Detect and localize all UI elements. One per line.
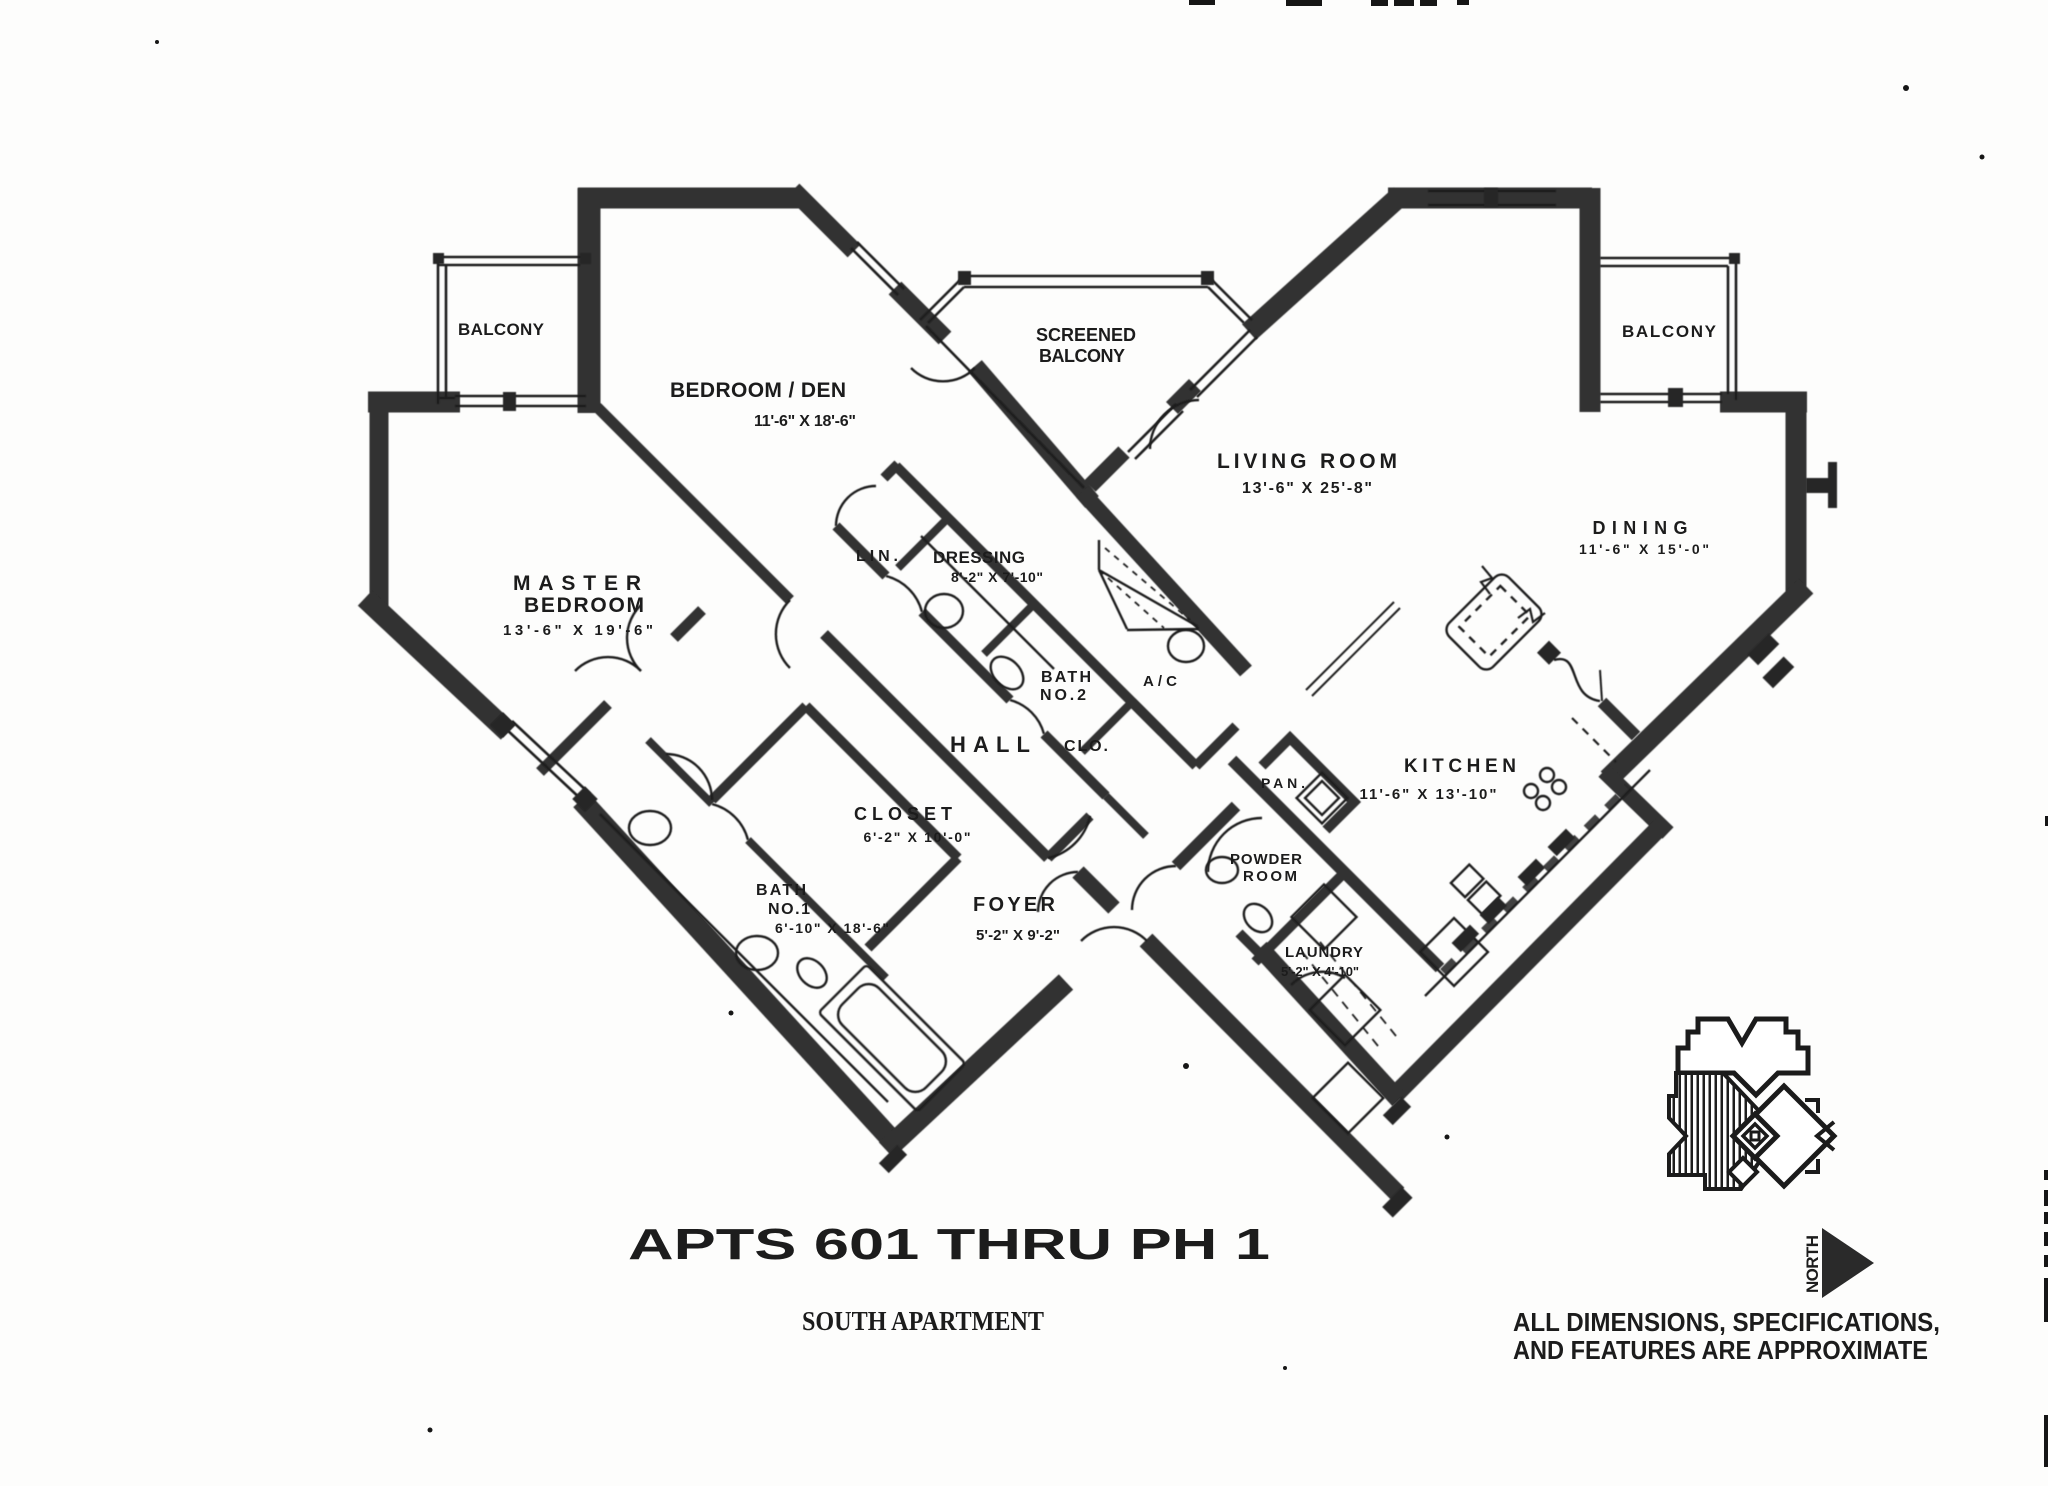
svg-text:5'-2" X 4'-10": 5'-2" X 4'-10" bbox=[1281, 964, 1359, 979]
svg-text:APTS 601 THRU PH 1: APTS 601 THRU PH 1 bbox=[628, 1220, 1270, 1269]
svg-text:LAUNDRY: LAUNDRY bbox=[1285, 944, 1363, 961]
svg-text:NO.1: NO.1 bbox=[768, 901, 810, 918]
svg-text:ROOM: ROOM bbox=[1243, 868, 1297, 885]
svg-text:A/C: A/C bbox=[1143, 673, 1177, 690]
svg-text:SCREENED: SCREENED bbox=[1036, 325, 1136, 345]
svg-text:BEDROOM: BEDROOM bbox=[524, 594, 644, 617]
svg-text:NORTH: NORTH bbox=[1803, 1235, 1822, 1293]
svg-text:5'-2" X 9'-2": 5'-2" X 9'-2" bbox=[976, 927, 1060, 944]
svg-text:AND FEATURES ARE APPROXIMATE: AND FEATURES ARE APPROXIMATE bbox=[1513, 1335, 1928, 1365]
svg-text:NO.2: NO.2 bbox=[1040, 687, 1086, 704]
svg-text:CLO.: CLO. bbox=[1064, 738, 1108, 755]
svg-text:ALL DIMENSIONS, SPECIFICATIONS: ALL DIMENSIONS, SPECIFICATIONS, bbox=[1513, 1307, 1940, 1337]
svg-text:POWDER: POWDER bbox=[1230, 851, 1302, 868]
svg-text:DRESSING: DRESSING bbox=[933, 548, 1025, 567]
svg-text:BALCONY: BALCONY bbox=[458, 320, 545, 339]
svg-text:11'-6" X 18'-6": 11'-6" X 18'-6" bbox=[754, 413, 856, 430]
svg-text:BALCONY: BALCONY bbox=[1622, 322, 1717, 341]
svg-text:BEDROOM / DEN: BEDROOM / DEN bbox=[670, 379, 846, 402]
svg-text:SOUTH APARTMENT: SOUTH APARTMENT bbox=[802, 1306, 1044, 1336]
svg-text:BALCONY: BALCONY bbox=[1039, 346, 1125, 366]
svg-text:8'-2" X 7'-10": 8'-2" X 7'-10" bbox=[951, 569, 1043, 585]
